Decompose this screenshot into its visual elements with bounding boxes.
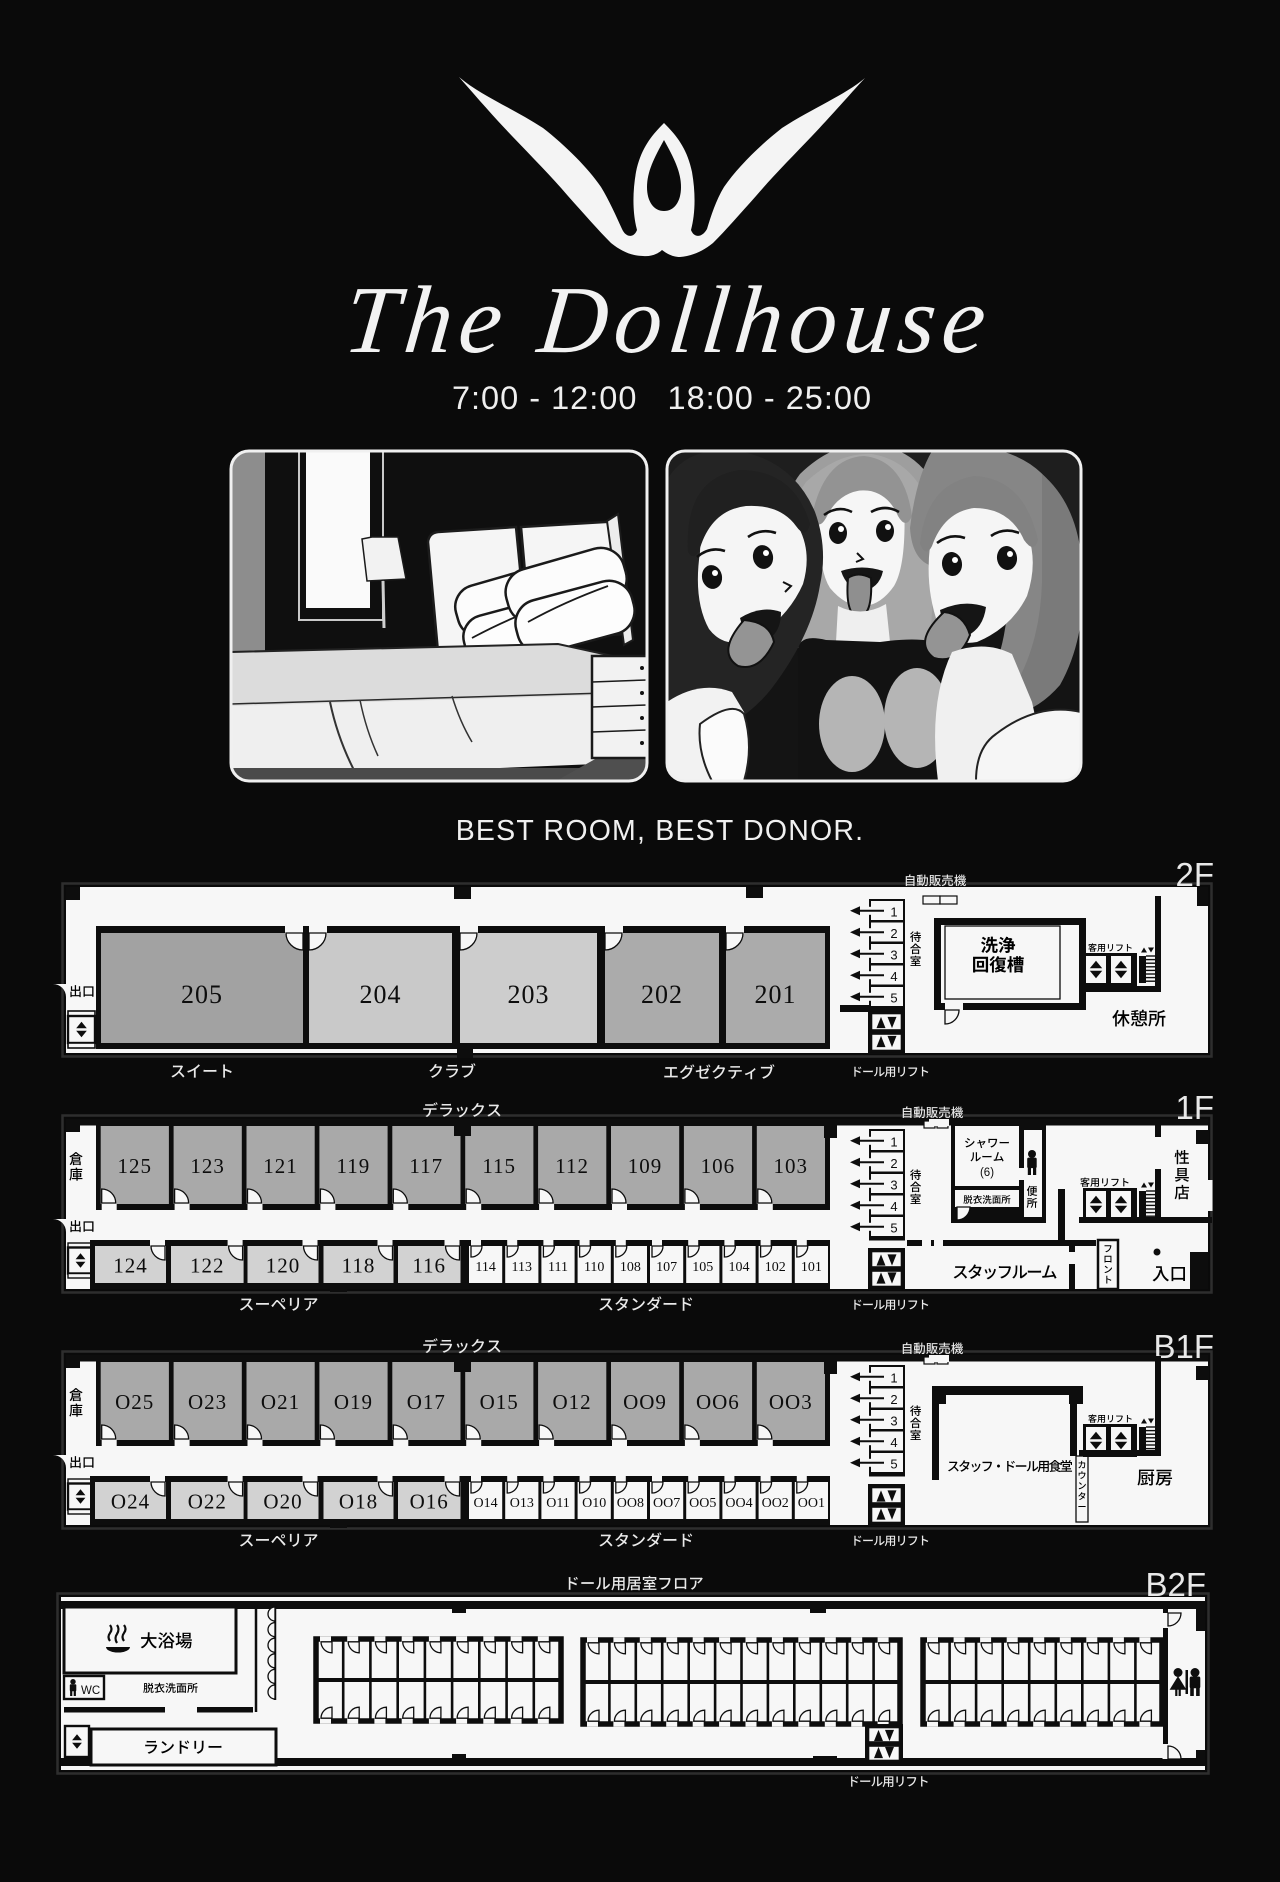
svg-text:O23: O23	[188, 1390, 227, 1414]
svg-text:O22: O22	[188, 1490, 227, 1514]
svg-text:O19: O19	[334, 1390, 373, 1414]
svg-text:106: 106	[701, 1154, 736, 1178]
svg-text:203: 203	[508, 980, 550, 1009]
svg-text:202: 202	[641, 980, 683, 1009]
svg-text:121: 121	[263, 1154, 298, 1178]
svg-text:1: 1	[890, 1371, 897, 1386]
svg-text:OO2: OO2	[762, 1496, 789, 1511]
svg-text:7:00 - 12:00 18:00 - 25:00: 7:00 - 12:00 18:00 - 25:00	[452, 380, 872, 416]
svg-text:2F: 2F	[1175, 856, 1214, 893]
svg-text:4: 4	[890, 969, 897, 984]
svg-text:O12: O12	[553, 1390, 592, 1414]
svg-text:118: 118	[342, 1254, 376, 1278]
svg-text:3: 3	[890, 1414, 897, 1429]
svg-text:OO6: OO6	[696, 1390, 740, 1414]
svg-text:109: 109	[628, 1154, 663, 1178]
svg-text:OO3: OO3	[769, 1390, 813, 1414]
svg-text:O25: O25	[115, 1390, 154, 1414]
svg-text:117: 117	[409, 1154, 443, 1178]
svg-text:105: 105	[692, 1260, 713, 1275]
svg-text:102: 102	[765, 1260, 786, 1275]
svg-text:3: 3	[890, 1178, 897, 1193]
svg-text:O15: O15	[480, 1390, 519, 1414]
svg-text:O20: O20	[263, 1490, 302, 1514]
svg-text:108: 108	[620, 1260, 641, 1275]
svg-text:111: 111	[548, 1260, 568, 1275]
svg-text:BEST ROOM, BEST DONOR.: BEST ROOM, BEST DONOR.	[456, 815, 865, 847]
svg-text:113: 113	[512, 1260, 532, 1275]
svg-text:125: 125	[117, 1154, 152, 1178]
svg-text:(6): (6)	[980, 1167, 994, 1179]
svg-text:119: 119	[337, 1154, 371, 1178]
svg-text:110: 110	[584, 1260, 604, 1275]
svg-text:O10: O10	[582, 1496, 606, 1511]
svg-text:124: 124	[113, 1254, 148, 1278]
svg-text:5: 5	[890, 1457, 897, 1472]
svg-text:2: 2	[890, 926, 897, 941]
svg-text:O14: O14	[474, 1496, 498, 1511]
svg-text:5: 5	[890, 1221, 897, 1236]
svg-text:122: 122	[190, 1254, 225, 1278]
svg-text:104: 104	[729, 1260, 750, 1275]
svg-text:205: 205	[181, 980, 223, 1009]
svg-text:4: 4	[890, 1199, 897, 1214]
svg-text:112: 112	[555, 1154, 589, 1178]
svg-text:114: 114	[475, 1260, 495, 1275]
svg-text:5: 5	[890, 991, 897, 1006]
svg-text:204: 204	[360, 980, 402, 1009]
svg-text:107: 107	[656, 1260, 677, 1275]
svg-text:O18: O18	[339, 1490, 378, 1514]
svg-text:B1F: B1F	[1153, 1328, 1214, 1365]
svg-text:3: 3	[890, 948, 897, 963]
svg-text:WC: WC	[81, 1685, 100, 1697]
svg-text:101: 101	[801, 1260, 822, 1275]
svg-text:116: 116	[412, 1254, 446, 1278]
svg-text:2: 2	[890, 1156, 897, 1171]
svg-text:201: 201	[755, 980, 797, 1009]
svg-text:4: 4	[890, 1435, 897, 1450]
svg-text:O16: O16	[410, 1490, 449, 1514]
svg-text:1: 1	[890, 1135, 897, 1150]
svg-text:O13: O13	[510, 1496, 534, 1511]
svg-text:O24: O24	[111, 1490, 150, 1514]
svg-text:OO1: OO1	[798, 1496, 825, 1511]
svg-text:O17: O17	[407, 1390, 446, 1414]
svg-text:OO9: OO9	[623, 1390, 667, 1414]
svg-text:115: 115	[482, 1154, 516, 1178]
svg-text:OO4: OO4	[725, 1496, 752, 1511]
svg-text:2: 2	[890, 1392, 897, 1407]
svg-text:123: 123	[190, 1154, 225, 1178]
svg-text:B2F: B2F	[1145, 1566, 1206, 1603]
svg-text:1: 1	[890, 905, 897, 920]
svg-text:1F: 1F	[1175, 1089, 1214, 1126]
svg-text:O21: O21	[261, 1390, 300, 1414]
svg-text:O11: O11	[546, 1496, 570, 1511]
svg-text:OO5: OO5	[689, 1496, 716, 1511]
svg-text:103: 103	[774, 1154, 809, 1178]
svg-text:OO7: OO7	[653, 1496, 680, 1511]
svg-text:120: 120	[266, 1254, 301, 1278]
svg-text:OO8: OO8	[617, 1496, 644, 1511]
